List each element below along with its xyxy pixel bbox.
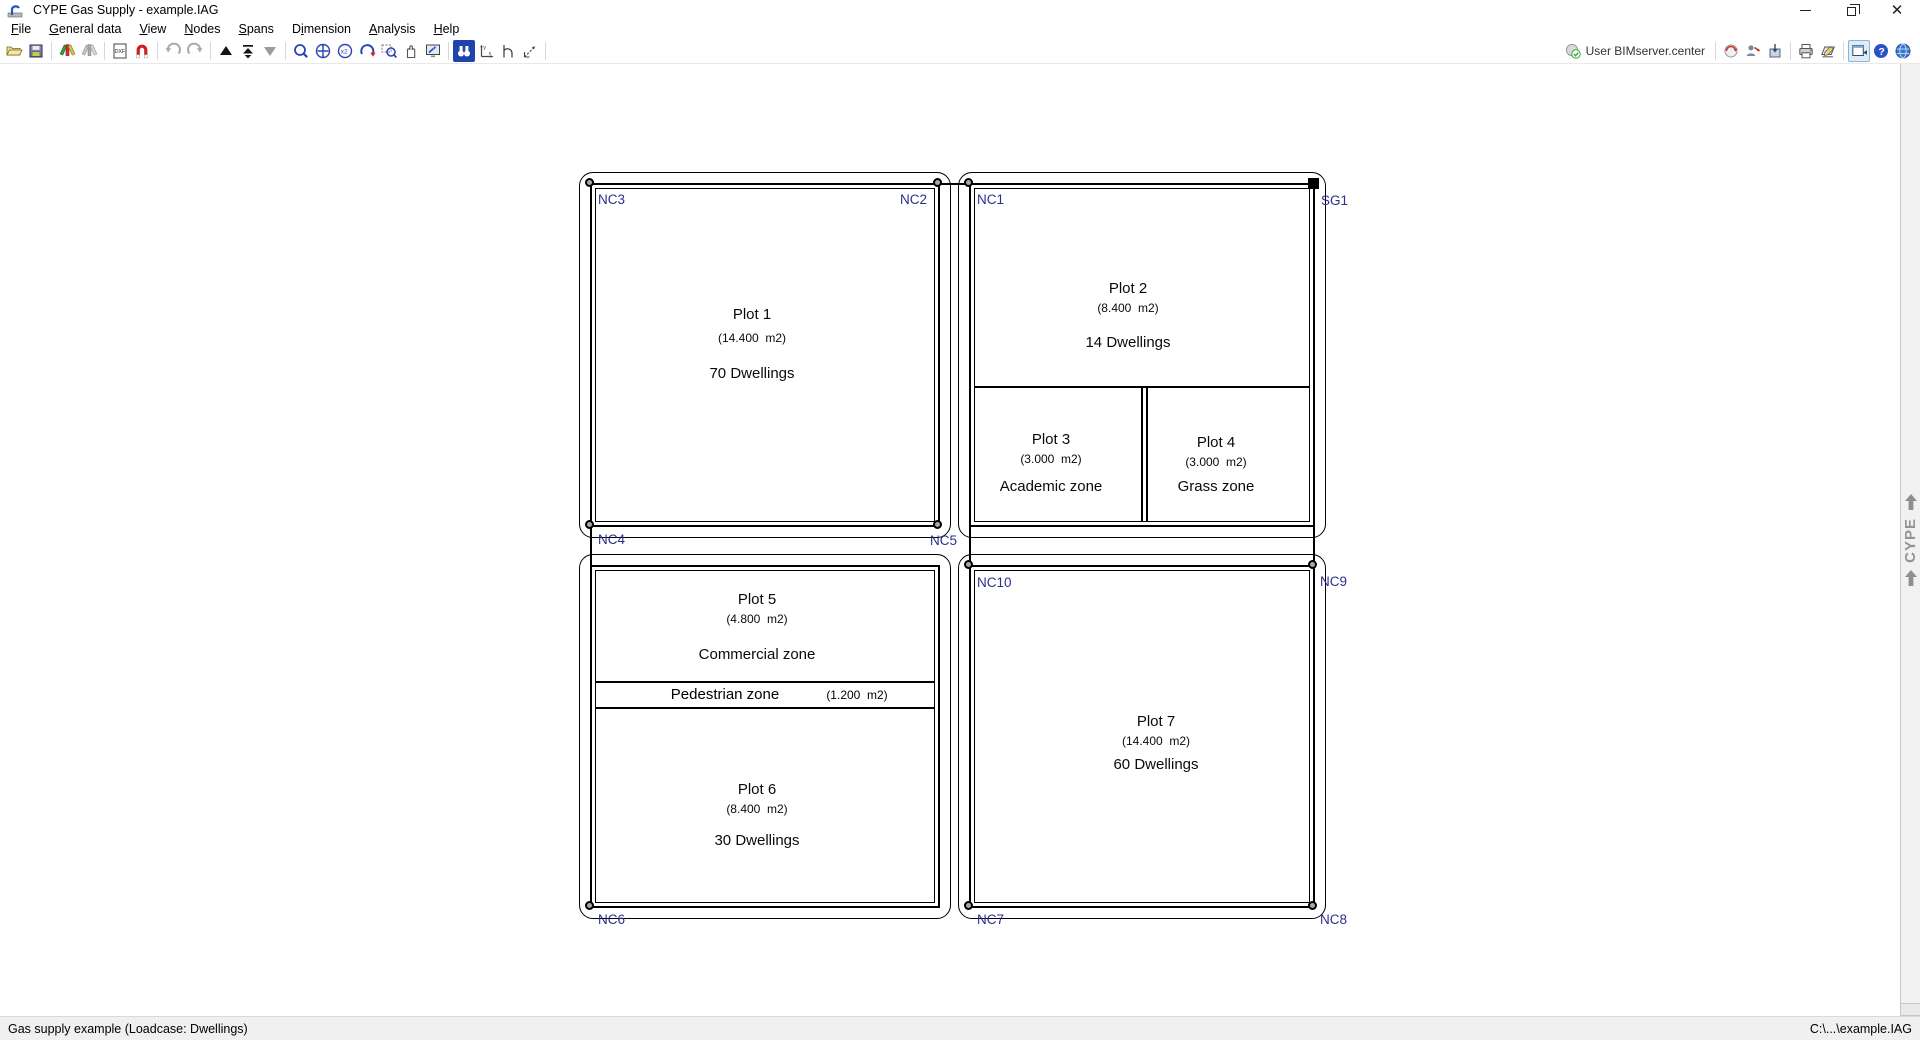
node-label-nc5: NC5 <box>930 533 957 548</box>
plot-area: (3.000 m2) <box>1116 455 1316 469</box>
toolbar-separator <box>157 42 158 60</box>
node-nc5[interactable] <box>933 520 942 529</box>
arrow-up-icon <box>1905 570 1917 586</box>
node-label-nc4: NC4 <box>598 532 625 547</box>
menu-label: ile <box>19 22 32 36</box>
menu-label: S <box>238 22 246 36</box>
user-settings-icon <box>1744 42 1762 60</box>
lower-element-button[interactable] <box>259 40 281 62</box>
measure-icon <box>521 42 539 60</box>
export-package-button[interactable] <box>1764 40 1786 62</box>
toolbar-separator <box>1843 42 1844 60</box>
edit-tools-disabled-icon <box>80 42 98 60</box>
snap-magnet-icon <box>133 42 151 60</box>
toolbar-separator <box>1790 42 1791 60</box>
menu-label: odes <box>193 22 220 36</box>
plot1-label: Plot 1 (14.400 m2) 70 Dwellings <box>622 306 882 382</box>
menu-label: pans <box>247 22 274 36</box>
plot5-label: Plot 5 (4.800 m2) Commercial zone <box>627 591 887 663</box>
menu-nodes[interactable]: Nodes <box>175 21 229 37</box>
snap-magnet-button[interactable] <box>131 40 153 62</box>
node-nc8[interactable] <box>1308 901 1317 910</box>
toolbar-separator <box>285 42 286 60</box>
full-screen-icon <box>424 42 442 60</box>
axes-origin-icon: yx <box>477 42 495 60</box>
plot-area: (14.400 m2) <box>1026 734 1286 748</box>
menu-label: G <box>49 22 59 36</box>
node-nc4[interactable] <box>585 520 594 529</box>
menu-label: mension <box>304 22 351 36</box>
cype-web-button[interactable] <box>1892 40 1914 62</box>
menu-file[interactable]: File <box>2 21 40 37</box>
node-label-nc3: NC3 <box>598 192 625 207</box>
export-package-icon <box>1766 42 1784 60</box>
pipe-segment <box>590 527 592 565</box>
fit-top-icon <box>239 42 257 60</box>
plot-use: 30 Dwellings <box>627 832 887 849</box>
menu-help[interactable]: Help <box>425 21 469 37</box>
open-file-button[interactable] <box>3 40 25 62</box>
menu-label: H <box>434 22 443 36</box>
node-nc9[interactable] <box>1308 560 1317 569</box>
plot-name: Plot 6 <box>627 781 887 798</box>
svg-text:x: x <box>489 50 492 56</box>
print-button[interactable] <box>1795 40 1817 62</box>
pedestrian-zone-label: Pedestrian zone <box>640 686 810 703</box>
save-icon <box>27 42 45 60</box>
menu-bar: File General data View Nodes Spans Dimen… <box>0 20 1920 38</box>
print-drawing-button[interactable] <box>1817 40 1839 62</box>
menu-label: F <box>11 22 19 36</box>
toolbar-separator <box>210 42 211 60</box>
lower-element-icon <box>261 42 279 60</box>
plot-use: 70 Dwellings <box>622 365 882 382</box>
node-nc6[interactable] <box>585 901 594 910</box>
user-settings-button[interactable] <box>1742 40 1764 62</box>
zoom-previous-icon <box>292 42 310 60</box>
plot-use: 60 Dwellings <box>1026 756 1286 773</box>
pan-hand-button[interactable] <box>400 40 422 62</box>
redo-button[interactable] <box>184 40 206 62</box>
zoom-window-icon <box>380 42 398 60</box>
fit-top-button[interactable] <box>237 40 259 62</box>
toolbar-separator <box>448 42 449 60</box>
bimserver-sync-button[interactable] <box>1720 40 1742 62</box>
close-button[interactable]: ✕ <box>1874 0 1920 20</box>
svg-text:x2: x2 <box>341 48 348 55</box>
print-icon <box>1797 42 1815 60</box>
minimize-button[interactable] <box>1782 0 1828 20</box>
menu-label: V <box>139 22 147 36</box>
pedestrian-zone-area: (1.200 m2) <box>797 688 917 702</box>
plot-use: 14 Dwellings <box>998 334 1258 351</box>
pan-hand-icon <box>402 42 420 60</box>
plot-name: Plot 2 <box>998 280 1258 297</box>
strip-end-cap <box>1900 1003 1920 1016</box>
plot-division-line <box>595 681 935 683</box>
measure-button[interactable] <box>519 40 541 62</box>
toolbar-separator <box>104 42 105 60</box>
user-label: User BIMserver.center <box>1586 44 1705 58</box>
menu-label: elp <box>443 22 460 36</box>
restore-button[interactable] <box>1828 0 1874 20</box>
help-button[interactable]: ? <box>1870 40 1892 62</box>
full-screen-button[interactable] <box>422 40 444 62</box>
zoom-extents-icon <box>314 42 332 60</box>
plot-area: (8.400 m2) <box>998 301 1258 315</box>
plot6-label: Plot 6 (8.400 m2) 30 Dwellings <box>627 781 887 849</box>
plot-name: Plot 1 <box>622 306 882 323</box>
menu-analysis[interactable]: Analysis <box>360 21 425 37</box>
status-loadcase-text: Gas supply example (Loadcase: Dwellings) <box>0 1022 248 1036</box>
redraw-button[interactable] <box>356 40 378 62</box>
plot2-label: Plot 2 (8.400 m2) 14 Dwellings <box>998 280 1258 351</box>
edit-tools-icon <box>58 42 76 60</box>
zoom-window-button[interactable] <box>378 40 400 62</box>
print-drawing-icon <box>1819 42 1837 60</box>
snap-reference-icon <box>499 42 517 60</box>
menu-spans[interactable]: Spans <box>229 21 282 37</box>
plot-name: Plot 4 <box>1116 434 1316 451</box>
zoom-x2-icon: x2 <box>336 42 354 60</box>
open-file-icon <box>5 42 23 60</box>
node-nc10[interactable] <box>964 560 973 569</box>
menu-label: nalysis <box>377 22 415 36</box>
dxf-template-button[interactable]: DXF <box>109 40 131 62</box>
plot-name: Plot 5 <box>627 591 887 608</box>
plot-area: (8.400 m2) <box>627 802 887 816</box>
status-bar: Gas supply example (Loadcase: Dwellings)… <box>0 1016 1920 1040</box>
title-bar[interactable]: CYPE Gas Supply - example.IAG ✕ <box>0 0 1920 20</box>
help-icon: ? <box>1872 42 1890 60</box>
zoom-x2-button[interactable]: x2 <box>334 40 356 62</box>
node-label-nc8: NC8 <box>1320 912 1347 927</box>
cype-brand-text: CYPE <box>1902 518 1919 563</box>
snap-reference-button[interactable] <box>497 40 519 62</box>
redo-icon <box>186 42 204 60</box>
node-label-nc2: NC2 <box>900 192 927 207</box>
minimize-icon <box>1800 10 1811 11</box>
node-sg1[interactable] <box>1308 178 1319 189</box>
node-nc7[interactable] <box>964 901 973 910</box>
toolbar-separator <box>51 42 52 60</box>
menu-label: eneral data <box>59 22 122 36</box>
toolbar-separator <box>1715 42 1716 60</box>
raise-element-button[interactable] <box>215 40 237 62</box>
undo-button[interactable] <box>162 40 184 62</box>
plot-use: Commercial zone <box>627 646 887 663</box>
svg-text:y: y <box>483 45 486 51</box>
toolbar-separator <box>545 42 546 60</box>
node-label-nc6: NC6 <box>598 912 625 927</box>
redraw-icon <box>358 42 376 60</box>
window-select-button[interactable] <box>1848 40 1870 62</box>
node-label-nc9: NC9 <box>1320 574 1347 589</box>
node-label-sg1: SG1 <box>1321 193 1348 208</box>
node-nc3[interactable] <box>585 178 594 187</box>
bimserver-user-chip[interactable]: User BIMserver.center <box>1559 43 1711 59</box>
window-title: CYPE Gas Supply - example.IAG <box>33 3 219 17</box>
plot-use: Grass zone <box>1116 478 1316 495</box>
search-view-button[interactable] <box>453 40 475 62</box>
node-nc2[interactable] <box>933 178 942 187</box>
node-label-nc10: NC10 <box>977 575 1012 590</box>
plot7-label: Plot 7 (14.400 m2) 60 Dwellings <box>1026 713 1286 773</box>
drawing-canvas[interactable]: Plot 1 (14.400 m2) 70 Dwellings Plot 2 (… <box>0 64 1920 1016</box>
cype-brand-strip[interactable]: CYPE <box>1900 64 1920 1016</box>
zoom-previous-button[interactable] <box>290 40 312 62</box>
plot-name: Plot 7 <box>1026 713 1286 730</box>
toolbar: DXF x2 yx User BIMserver.center ? <box>0 38 1920 64</box>
node-nc1[interactable] <box>964 178 973 187</box>
menu-dimension[interactable]: Dimension <box>283 21 360 37</box>
cype-web-icon <box>1894 42 1912 60</box>
zoom-extents-button[interactable] <box>312 40 334 62</box>
raise-element-icon <box>217 42 235 60</box>
plot-area: (14.400 m2) <box>622 331 882 345</box>
dxf-template-icon: DXF <box>111 42 129 60</box>
menu-label: iew <box>148 22 167 36</box>
user-status-icon <box>1565 43 1581 59</box>
undo-icon <box>164 42 182 60</box>
restore-icon <box>1847 7 1856 16</box>
close-icon: ✕ <box>1891 3 1904 18</box>
menu-label: D <box>292 22 301 36</box>
menu-view[interactable]: View <box>130 21 175 37</box>
save-button[interactable] <box>25 40 47 62</box>
window-select-icon <box>1850 42 1868 60</box>
edit-tools-button[interactable] <box>56 40 78 62</box>
axes-origin-button[interactable]: yx <box>475 40 497 62</box>
svg-text:DXF: DXF <box>115 49 125 55</box>
plot4-label: Plot 4 (3.000 m2) Grass zone <box>1116 434 1316 495</box>
edit-tools-disabled-button[interactable] <box>78 40 100 62</box>
plot-division-line <box>595 707 935 709</box>
app-icon <box>7 3 23 19</box>
node-label-nc7: NC7 <box>977 912 1004 927</box>
arrow-up-icon <box>1905 494 1917 510</box>
svg-text:?: ? <box>1878 45 1884 57</box>
status-filepath-text: C:\...\example.IAG <box>1810 1022 1912 1036</box>
plot-area: (4.800 m2) <box>627 612 887 626</box>
node-label-nc1: NC1 <box>977 192 1004 207</box>
menu-general-data[interactable]: General data <box>40 21 130 37</box>
search-view-icon <box>455 42 473 60</box>
bimserver-sync-icon <box>1722 42 1740 60</box>
